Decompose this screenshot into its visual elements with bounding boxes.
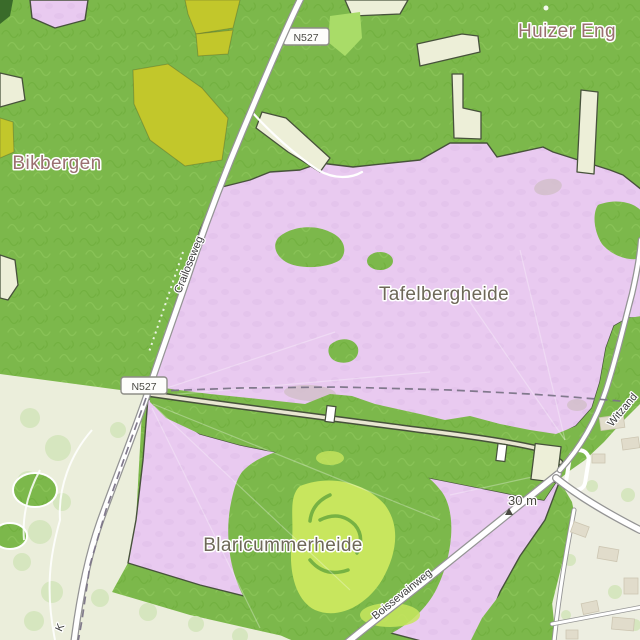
farm-strip-3 xyxy=(577,90,598,174)
route-badge-n527-bottom: N527 xyxy=(121,377,167,394)
dune-lime-blotch xyxy=(316,451,344,465)
map-canvas[interactable]: N527 xyxy=(0,0,640,640)
area-label-blaricummerheide: Blaricummerheide xyxy=(203,535,363,556)
bare-patch-4 xyxy=(567,399,587,411)
field-olive-4 xyxy=(0,118,14,158)
route-badge-text: N527 xyxy=(131,381,156,393)
forest-island-2 xyxy=(367,252,393,270)
bridge-tick-1 xyxy=(325,406,336,423)
small-clearing-dot xyxy=(544,6,549,11)
route-badge-text: N527 xyxy=(293,32,318,44)
area-label-tafelbergheide: Tafelbergheide xyxy=(379,284,509,305)
bridge-tick-2 xyxy=(496,444,507,462)
place-label-huizer-eng: Huizer Eng xyxy=(518,21,616,42)
map-viewport[interactable]: N527 xyxy=(0,0,640,640)
place-label-bikbergen: Bikbergen xyxy=(12,153,101,174)
field-olive-2 xyxy=(196,30,233,56)
peak-elevation-label: 30 m xyxy=(508,493,537,508)
